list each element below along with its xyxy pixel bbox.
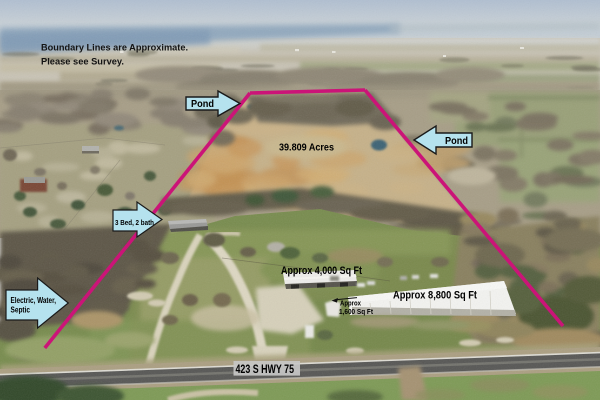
svg-text:Please see Survey.: Please see Survey. bbox=[41, 57, 124, 68]
svg-text:1,600 Sq Ft: 1,600 Sq Ft bbox=[339, 307, 374, 316]
svg-text:Approx 8,800 Sq Ft: Approx 8,800 Sq Ft bbox=[393, 290, 477, 302]
svg-text:3 Bed, 2 bath: 3 Bed, 2 bath bbox=[115, 218, 154, 227]
svg-text:423 S HWY 75: 423 S HWY 75 bbox=[236, 364, 295, 376]
svg-text:Septic: Septic bbox=[11, 306, 31, 315]
svg-text:Pond: Pond bbox=[191, 99, 214, 110]
svg-text:39.809 Acres: 39.809 Acres bbox=[279, 142, 334, 154]
svg-text:Boundary Lines are Approximate: Boundary Lines are Approximate. bbox=[41, 43, 188, 54]
svg-text:Approx 4,000 Sq Ft: Approx 4,000 Sq Ft bbox=[281, 265, 362, 277]
svg-text:Electric, Water,: Electric, Water, bbox=[11, 296, 57, 305]
svg-text:Pond: Pond bbox=[445, 136, 468, 147]
